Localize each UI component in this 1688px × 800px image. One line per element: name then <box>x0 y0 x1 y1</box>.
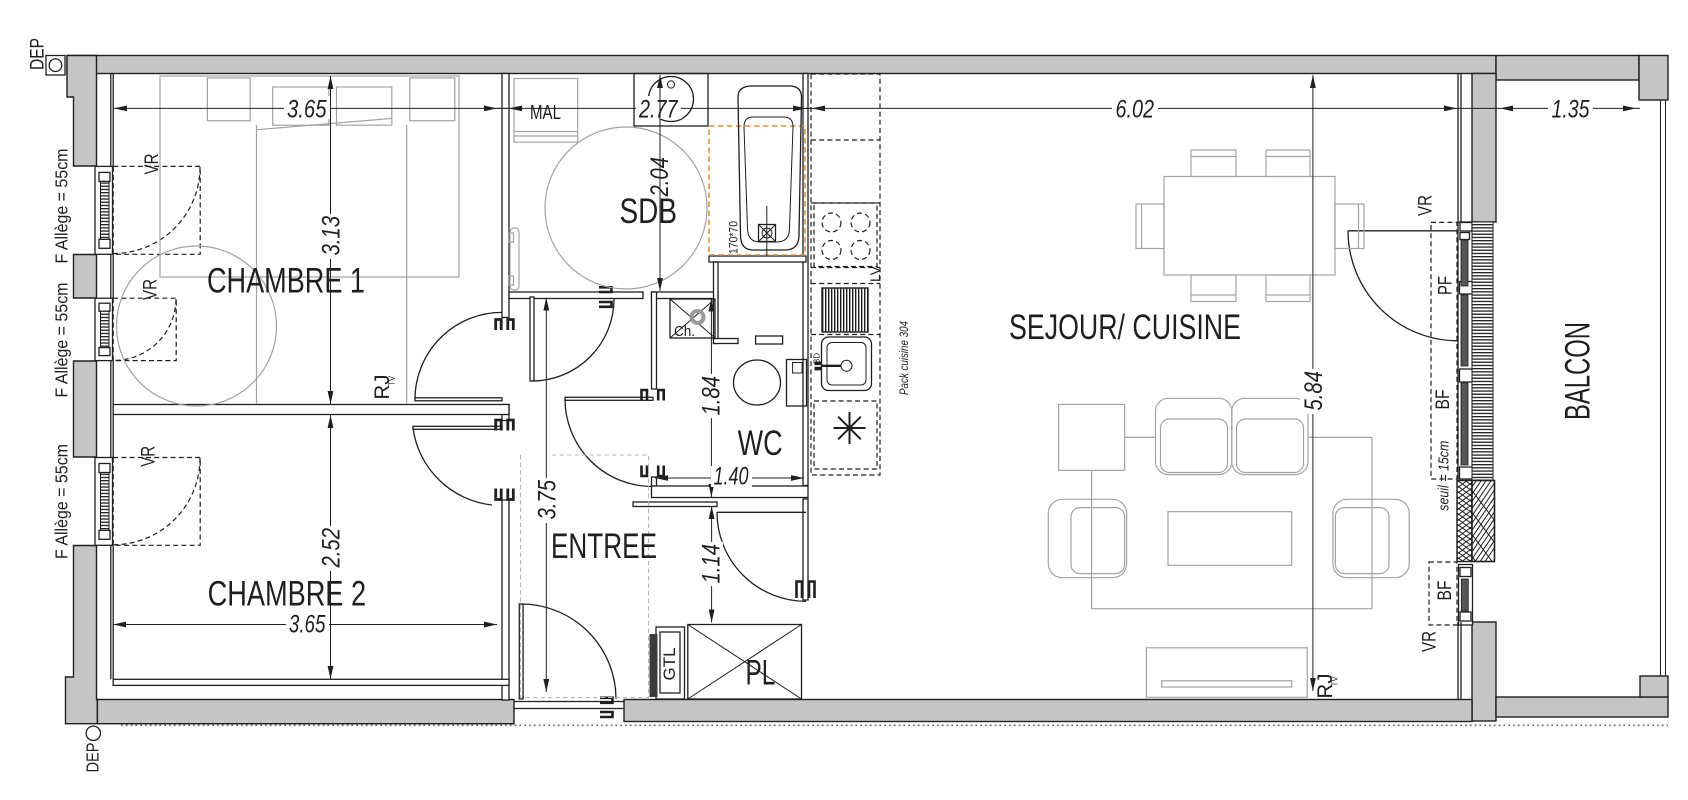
svg-text:TV: TV <box>1331 676 1340 687</box>
svg-text:GTL: GTL <box>660 648 679 681</box>
svg-text:Pack cuisine 304: Pack cuisine 304 <box>897 321 911 395</box>
svg-text:BALCON: BALCON <box>1559 322 1598 420</box>
svg-text:F Allège = 55cm: F Allège = 55cm <box>52 444 72 559</box>
svg-text:ENTREE: ENTREE <box>551 527 657 566</box>
svg-text:PF: PF <box>1436 276 1457 295</box>
svg-text:BF: BF <box>1433 390 1454 410</box>
svg-text:3.13: 3.13 <box>318 216 346 256</box>
svg-text:1.40: 1.40 <box>714 463 749 491</box>
svg-text:LV: LV <box>867 265 883 282</box>
svg-text:PL: PL <box>746 654 776 693</box>
svg-text:1.35: 1.35 <box>1552 96 1590 124</box>
svg-text:6.02: 6.02 <box>1116 96 1155 124</box>
svg-text:DEP: DEP <box>83 743 103 773</box>
svg-text:VR: VR <box>1416 195 1437 216</box>
svg-text:3.75: 3.75 <box>533 480 561 520</box>
svg-text:2.77: 2.77 <box>638 96 678 124</box>
svg-text:BF: BF <box>1435 581 1456 601</box>
svg-text:VR: VR <box>1420 631 1441 652</box>
svg-text:MAL: MAL <box>530 102 561 124</box>
svg-text:BD: BD <box>813 353 822 364</box>
svg-text:2.52: 2.52 <box>318 528 346 568</box>
svg-text:SDB: SDB <box>620 192 678 231</box>
svg-text:TV: TV <box>388 375 397 386</box>
svg-text:F Allège = 55cm: F Allège = 55cm <box>52 283 72 398</box>
svg-text:VR: VR <box>139 446 160 467</box>
svg-text:1.84: 1.84 <box>697 376 725 416</box>
svg-text:seuil = 15cm: seuil = 15cm <box>1436 441 1453 511</box>
svg-text:F Allège = 55cm: F Allège = 55cm <box>52 149 72 264</box>
svg-text:SEJOUR/ CUISINE: SEJOUR/ CUISINE <box>1009 308 1241 347</box>
svg-text:1.14: 1.14 <box>698 544 726 584</box>
svg-text:5.84: 5.84 <box>1300 371 1328 411</box>
svg-text:170*70: 170*70 <box>729 221 741 254</box>
svg-text:CHAMBRE 2: CHAMBRE 2 <box>208 575 367 614</box>
svg-text:3.65: 3.65 <box>289 611 326 639</box>
svg-text:WC: WC <box>738 424 783 463</box>
svg-text:DEP: DEP <box>28 38 49 70</box>
svg-text:CHAMBRE 1: CHAMBRE 1 <box>207 262 365 301</box>
svg-text:VR: VR <box>140 279 161 300</box>
svg-text:Ch.: Ch. <box>674 323 695 340</box>
svg-text:VR: VR <box>142 154 163 175</box>
svg-text:3.65: 3.65 <box>287 96 327 124</box>
